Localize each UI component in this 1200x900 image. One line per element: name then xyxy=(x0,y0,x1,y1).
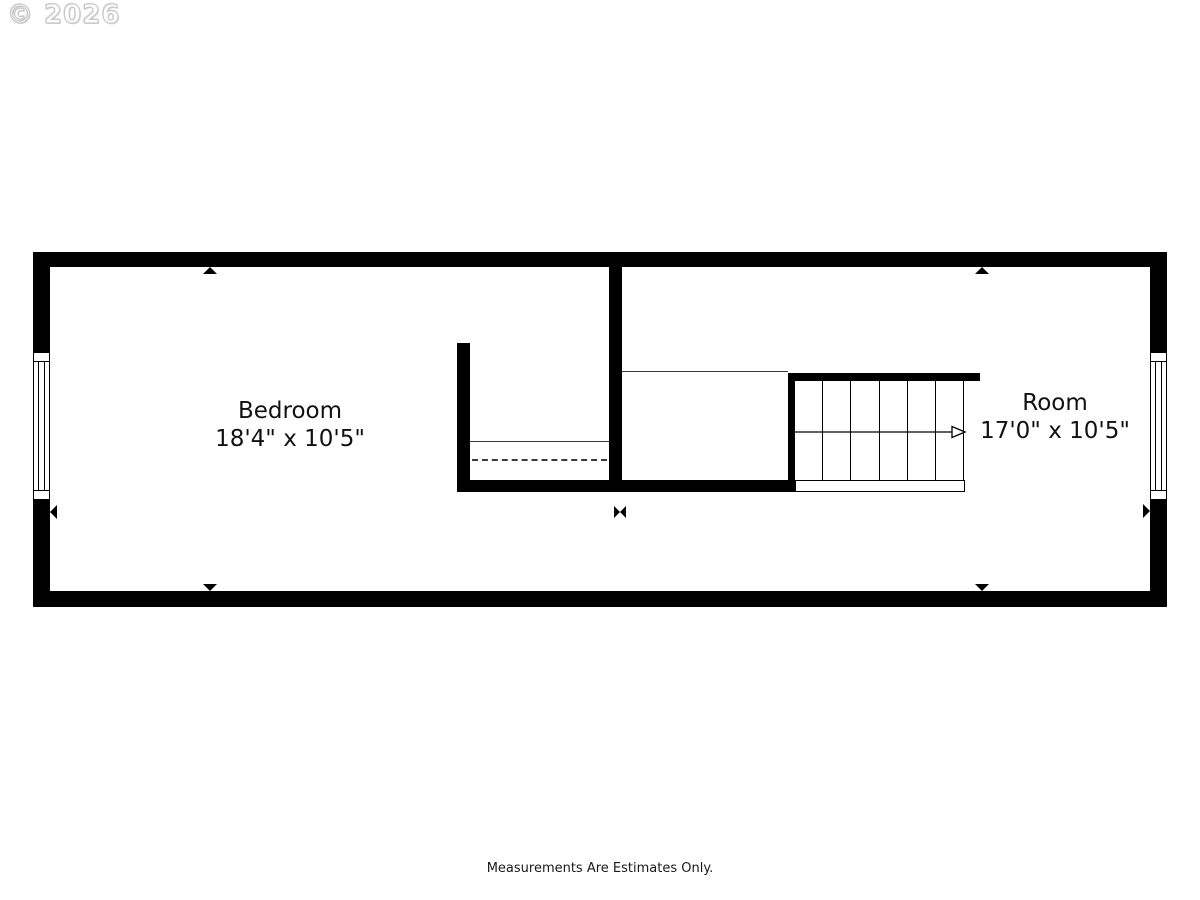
window-pane xyxy=(38,362,45,490)
closet-rod-dashed-line xyxy=(472,459,607,461)
wall-marker-up-icon xyxy=(975,267,989,274)
wall-closet-left xyxy=(457,343,470,492)
wall-center-vertical xyxy=(609,252,622,492)
hall-edge-line xyxy=(622,371,788,372)
window-left xyxy=(33,352,50,500)
disclaimer-text: Measurements Are Estimates Only. xyxy=(0,861,1200,877)
wall-marker-bowtie-icon xyxy=(620,506,626,518)
window-glass xyxy=(34,362,49,490)
wall-marker-up-icon xyxy=(203,267,217,274)
wall-marker-down-icon xyxy=(975,584,989,591)
room-label: Room 17'0" x 10'5" xyxy=(935,389,1175,445)
room-name: Room xyxy=(935,389,1175,417)
window-sill xyxy=(1151,490,1166,499)
wall-stairs-left xyxy=(788,373,795,480)
window-sill xyxy=(1151,353,1166,362)
wall-top xyxy=(33,252,1167,267)
wall-marker-right-icon xyxy=(1143,504,1150,518)
window-sill xyxy=(34,353,49,362)
room-dimensions: 17'0" x 10'5" xyxy=(935,417,1175,445)
window-sill xyxy=(34,490,49,499)
wall-marker-left-icon xyxy=(50,505,57,519)
closet-shelf-line xyxy=(470,441,609,442)
wall-bottom xyxy=(33,591,1167,607)
floorplan-canvas: © 2026 Bedroom 18'4" x 10'5" xyxy=(0,0,1200,900)
bedroom-label: Bedroom 18'4" x 10'5" xyxy=(140,397,440,453)
wall-middle-horizontal xyxy=(457,480,795,492)
room-dimensions: 18'4" x 10'5" xyxy=(140,425,440,453)
wall-stairs-top xyxy=(788,373,980,381)
wall-marker-down-icon xyxy=(203,584,217,591)
copyright-watermark: © 2026 xyxy=(7,0,120,30)
stairs-landing-strip xyxy=(795,480,965,492)
room-name: Bedroom xyxy=(140,397,440,425)
